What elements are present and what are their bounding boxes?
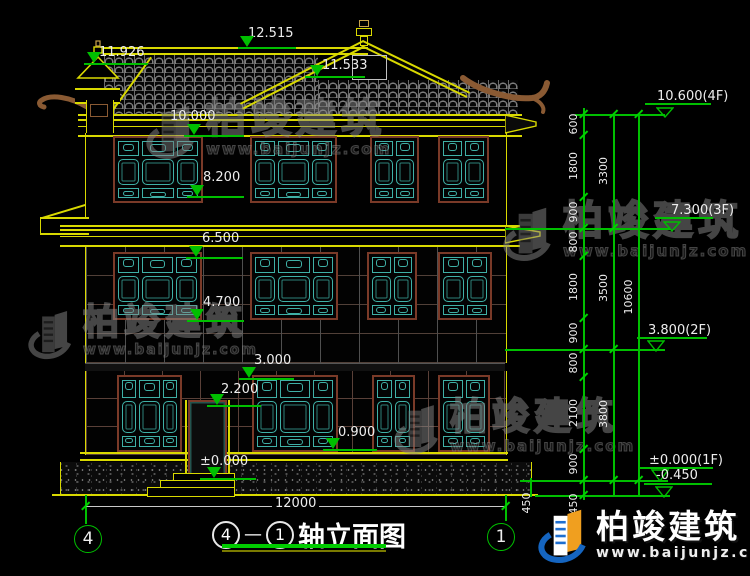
window-column <box>255 257 275 315</box>
elevation-marker-line <box>305 76 365 78</box>
dim-chain-value: 3800 <box>598 400 609 428</box>
level-marker-value: 10.600(4F) <box>657 90 728 103</box>
level-marker-triangle-icon <box>647 337 665 356</box>
axis-extension-line <box>85 495 87 524</box>
dim-chain-value: 600 <box>568 114 579 135</box>
brand-url: www.baijunjz.com <box>596 545 750 561</box>
elevation-marker-value: 12.515 <box>248 27 294 40</box>
plinth <box>60 462 532 495</box>
dim-chain-line <box>613 114 615 497</box>
window-column <box>377 380 392 447</box>
dim-chain-value: 3300 <box>598 157 609 185</box>
elevation-marker-line <box>187 196 244 198</box>
window-column <box>118 257 139 315</box>
window-column <box>375 141 393 198</box>
window-column <box>176 257 197 315</box>
window-column <box>467 257 488 315</box>
dim-chain-value: 1800 <box>568 152 579 180</box>
elevation-marker-line <box>239 378 294 380</box>
watermark-logo-icon <box>28 304 75 364</box>
watermark-url: www.baijunjz.com <box>563 242 748 260</box>
dim-chain-value: 900 <box>568 323 579 344</box>
upper-eave-end-cap <box>505 114 537 134</box>
dim-chain-value: 900 <box>568 202 579 223</box>
upper-eave-band <box>78 119 522 137</box>
upper-eave-edge <box>78 114 522 116</box>
door-jamb <box>185 400 187 478</box>
level-helper-line <box>535 495 670 497</box>
level-helper-line <box>505 228 670 230</box>
level-helper-line <box>575 114 665 116</box>
lattice-window <box>438 136 489 203</box>
window-column <box>278 141 309 198</box>
lattice-window <box>250 252 338 320</box>
dim-extra-value: 450 <box>521 493 532 514</box>
elevation-marker-triangle-icon <box>310 65 324 76</box>
elevation-marker-line <box>184 135 244 137</box>
elevation-marker-line <box>200 478 256 480</box>
level-marker-value: 7.300(3F) <box>671 204 734 217</box>
elevation-marker-line <box>187 320 244 322</box>
dim-chain-value: 1800 <box>568 273 579 301</box>
window-column <box>396 141 414 198</box>
level-marker-value: -0.450 <box>656 469 698 482</box>
tower-bracket <box>90 104 108 117</box>
window-column <box>280 380 311 447</box>
dim-chain-value: 900 <box>568 454 579 475</box>
window-column <box>257 380 277 447</box>
brand-logo: 柏竣建筑 www.baijunjz.com <box>538 502 750 568</box>
drawing-title: 4—1轴立面图 <box>212 515 406 554</box>
window-column <box>278 257 309 315</box>
lattice-window <box>370 136 419 203</box>
window-column <box>163 380 177 447</box>
lower-eave-edge <box>60 225 520 227</box>
overall-dim-value: 12000 <box>272 497 319 510</box>
lattice-window <box>113 252 202 320</box>
title-underline <box>222 544 386 548</box>
elevation-marker-triangle-icon <box>240 36 254 47</box>
gable-finial <box>356 20 372 46</box>
level-marker-triangle-icon <box>655 483 673 502</box>
elevation-marker-triangle-icon <box>207 467 221 478</box>
dim-chain-value: 2100 <box>568 399 579 427</box>
window-column <box>122 380 136 447</box>
elevation-marker-value: 8.200 <box>203 171 240 184</box>
elevation-marker-value: 4.700 <box>203 296 240 309</box>
level-marker-value: 3.800(2F) <box>648 324 711 337</box>
window-column <box>443 380 463 447</box>
axis-bubble: 4 <box>74 525 102 553</box>
cad-elevation-drawing: 4—1轴立面图 柏竣建筑 www.baijunjz.com 12.51511.9… <box>0 0 750 576</box>
brand-logo-icon <box>538 502 590 568</box>
window-column <box>255 141 275 198</box>
lower-eave-band <box>60 229 520 247</box>
title-separator: — <box>244 524 262 545</box>
elevation-marker-line <box>238 47 296 49</box>
window-column <box>394 257 413 315</box>
level-helper-line <box>520 480 668 482</box>
title-label: 轴立面图 <box>298 515 406 554</box>
elevation-marker-triangle-icon <box>87 52 101 63</box>
lattice-window <box>117 375 182 452</box>
window-column <box>466 380 486 447</box>
level-marker-triangle-icon <box>656 103 674 122</box>
lattice-window <box>367 252 417 320</box>
elevation-marker-triangle-icon <box>189 246 203 257</box>
elevation-marker-line <box>207 405 261 407</box>
lattice-window <box>438 252 492 320</box>
window-column <box>118 141 139 198</box>
window-column <box>372 257 391 315</box>
elevation-marker-line <box>323 449 377 451</box>
level-marker-value: ±0.000(1F) <box>649 454 723 467</box>
plinth-top-line <box>80 459 508 461</box>
dim-chain-value: 800 <box>568 232 579 253</box>
window-column <box>139 380 160 447</box>
elevation-marker-line <box>186 257 243 259</box>
window-column <box>142 257 174 315</box>
window-column <box>443 141 462 198</box>
elevation-marker-value: 11.926 <box>99 46 145 59</box>
elevation-marker-value: 3.000 <box>254 354 291 367</box>
brand-name: 柏竣建筑 <box>596 510 750 543</box>
elevation-marker-value: 11.533 <box>322 59 368 72</box>
title-underline-thin <box>222 550 386 552</box>
window-column <box>313 380 333 447</box>
elevation-marker-triangle-icon <box>190 185 204 196</box>
elevation-marker-triangle-icon <box>326 438 340 449</box>
elevation-marker-triangle-icon <box>187 124 201 135</box>
window-column <box>395 380 410 447</box>
elevation-marker-triangle-icon <box>242 367 256 378</box>
elevation-marker-value: 2.200 <box>221 383 258 396</box>
lattice-window <box>372 375 415 452</box>
elevation-marker-value: 10.000 <box>170 110 216 123</box>
dim-chain-value: 10600 <box>623 280 634 315</box>
window-column <box>312 141 332 198</box>
window-column <box>443 257 464 315</box>
elevation-marker-value: 6.500 <box>202 232 239 245</box>
window-column <box>142 141 174 198</box>
window-column <box>313 257 333 315</box>
dim-chain-value: 3500 <box>598 274 609 302</box>
window-column <box>465 141 484 198</box>
plinth-top-line <box>80 452 508 454</box>
axis-bubble: 1 <box>487 523 515 551</box>
elevation-marker-triangle-icon <box>190 309 204 320</box>
lattice-window <box>250 136 337 203</box>
dim-chain-line <box>583 108 585 500</box>
dim-chain-value: 800 <box>568 353 579 374</box>
axis-extension-line <box>505 495 507 521</box>
elevation-marker-triangle-icon <box>210 394 224 405</box>
elevation-marker-value: 0.900 <box>338 426 375 439</box>
elevation-marker-line <box>84 63 148 65</box>
level-helper-line <box>505 349 665 351</box>
lattice-window <box>438 375 490 452</box>
ridge-ornament-right-icon <box>460 70 550 116</box>
dim-chain-line <box>638 114 640 497</box>
level-marker-triangle-icon <box>663 217 681 236</box>
